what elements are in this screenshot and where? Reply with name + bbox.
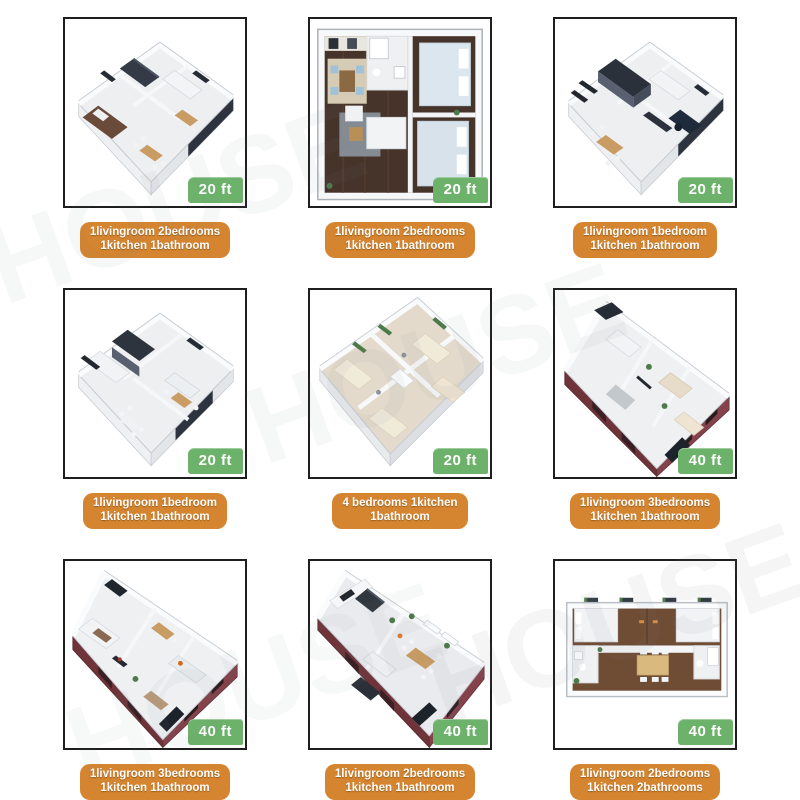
size-badge: 20 ft [678, 177, 733, 203]
floorplan-card: 40 ft 1livingroom 2bedrooms 1kitchen 1ba… [308, 559, 492, 800]
spec-label: 1livingroom 2bedrooms 1kitchen 2bathroom… [570, 764, 720, 800]
spec-label: 1livingroom 3bedrooms 1kitchen 1bathroom [80, 764, 230, 800]
spec-label-wrap: 1livingroom 2bedrooms 1kitchen 2bathroom… [553, 764, 737, 800]
spec-label: 1livingroom 2bedrooms 1kitchen 1bathroom [325, 222, 475, 258]
floorplan-image[interactable]: 40 ft [63, 559, 247, 750]
floorplan-image[interactable]: 20 ft [63, 288, 247, 479]
size-badge: 20 ft [433, 448, 488, 474]
size-badge: 40 ft [188, 719, 243, 745]
size-badge: 20 ft [433, 177, 488, 203]
spec-label-wrap: 1livingroom 2bedrooms 1kitchen 1bathroom [308, 222, 492, 258]
spec-line-1: 4 bedrooms 1kitchen [342, 497, 457, 509]
spec-line-1: 1livingroom 3bedrooms [90, 768, 220, 780]
floorplan-catalog: 20 ft 1livingroom 2bedrooms 1kitchen 1ba… [0, 0, 800, 800]
spec-label: 1livingroom 1bedroom 1kitchen 1bathroom [83, 493, 227, 529]
spec-line-2: 1kitchen 2bathrooms [587, 782, 703, 794]
spec-line-2: 1kitchen 1bathroom [345, 782, 454, 794]
size-badge: 40 ft [678, 448, 733, 474]
spec-label-wrap: 1livingroom 2bedrooms 1kitchen 1bathroom [63, 222, 247, 258]
floorplan-card: 20 ft 1livingroom 2bedrooms 1kitchen 1ba… [63, 17, 247, 258]
size-badge: 40 ft [678, 719, 733, 745]
size-badge: 20 ft [188, 177, 243, 203]
spec-label: 1livingroom 3bedrooms 1kitchen 1bathroom [570, 493, 720, 529]
floorplan-image[interactable]: 20 ft [553, 17, 737, 208]
spec-line-1: 1livingroom 2bedrooms [335, 226, 465, 238]
floorplan-image[interactable]: 20 ft [63, 17, 247, 208]
spec-line-1: 1livingroom 3bedrooms [580, 497, 710, 509]
spec-line-2: 1kitchen 1bathroom [100, 511, 209, 523]
spec-line-2: 1kitchen 1bathroom [345, 240, 454, 252]
spec-line-1: 1livingroom 2bedrooms [90, 226, 220, 238]
spec-label-wrap: 1livingroom 1bedroom 1kitchen 1bathroom [553, 222, 737, 258]
floorplan-card: 40 ft 1livingroom 3bedrooms 1kitchen 1ba… [63, 559, 247, 800]
floorplan-image[interactable]: 20 ft [308, 17, 492, 208]
spec-label-wrap: 1livingroom 3bedrooms 1kitchen 1bathroom [63, 764, 247, 800]
floorplan-card: 20 ft 1livingroom 2bedrooms 1kitchen 1ba… [308, 17, 492, 258]
spec-label-wrap: 1livingroom 1bedroom 1kitchen 1bathroom [63, 493, 247, 529]
size-badge: 40 ft [433, 719, 488, 745]
floorplan-image[interactable]: 40 ft [553, 288, 737, 479]
spec-label: 4 bedrooms 1kitchen 1bathroom [332, 493, 467, 529]
spec-label: 1livingroom 2bedrooms 1kitchen 1bathroom [325, 764, 475, 800]
spec-label: 1livingroom 1bedroom 1kitchen 1bathroom [573, 222, 717, 258]
spec-line-2: 1kitchen 1bathroom [590, 511, 699, 523]
spec-line-2: 1kitchen 1bathroom [590, 240, 699, 252]
spec-line-2: 1kitchen 1bathroom [100, 782, 209, 794]
floorplan-card: 20 ft 1livingroom 1bedroom 1kitchen 1bat… [553, 17, 737, 258]
spec-line-1: 1livingroom 2bedrooms [580, 768, 710, 780]
size-badge: 20 ft [188, 448, 243, 474]
spec-line-1: 1livingroom 1bedroom [583, 226, 707, 238]
spec-label: 1livingroom 2bedrooms 1kitchen 1bathroom [80, 222, 230, 258]
spec-line-2: 1kitchen 1bathroom [100, 240, 209, 252]
spec-label-wrap: 1livingroom 2bedrooms 1kitchen 1bathroom [308, 764, 492, 800]
spec-line-1: 1livingroom 1bedroom [93, 497, 217, 509]
spec-line-1: 1livingroom 2bedrooms [335, 768, 465, 780]
floorplan-image[interactable]: 40 ft [308, 559, 492, 750]
spec-line-2: 1bathroom [370, 511, 429, 523]
spec-label-wrap: 1livingroom 3bedrooms 1kitchen 1bathroom [553, 493, 737, 529]
floorplan-image[interactable]: 40 ft [553, 559, 737, 750]
floorplan-card: 20 ft 4 bedrooms 1kitchen 1bathroom [308, 288, 492, 529]
spec-label-wrap: 4 bedrooms 1kitchen 1bathroom [308, 493, 492, 529]
floorplan-card: 40 ft 1livingroom 3bedrooms 1kitchen 1ba… [553, 288, 737, 529]
floorplan-image[interactable]: 20 ft [308, 288, 492, 479]
floorplan-grid: 20 ft 1livingroom 2bedrooms 1kitchen 1ba… [63, 17, 737, 800]
floorplan-card: 40 ft 1livingroom 2bedrooms 1kitchen 2ba… [553, 559, 737, 800]
floorplan-card: 20 ft 1livingroom 1bedroom 1kitchen 1bat… [63, 288, 247, 529]
